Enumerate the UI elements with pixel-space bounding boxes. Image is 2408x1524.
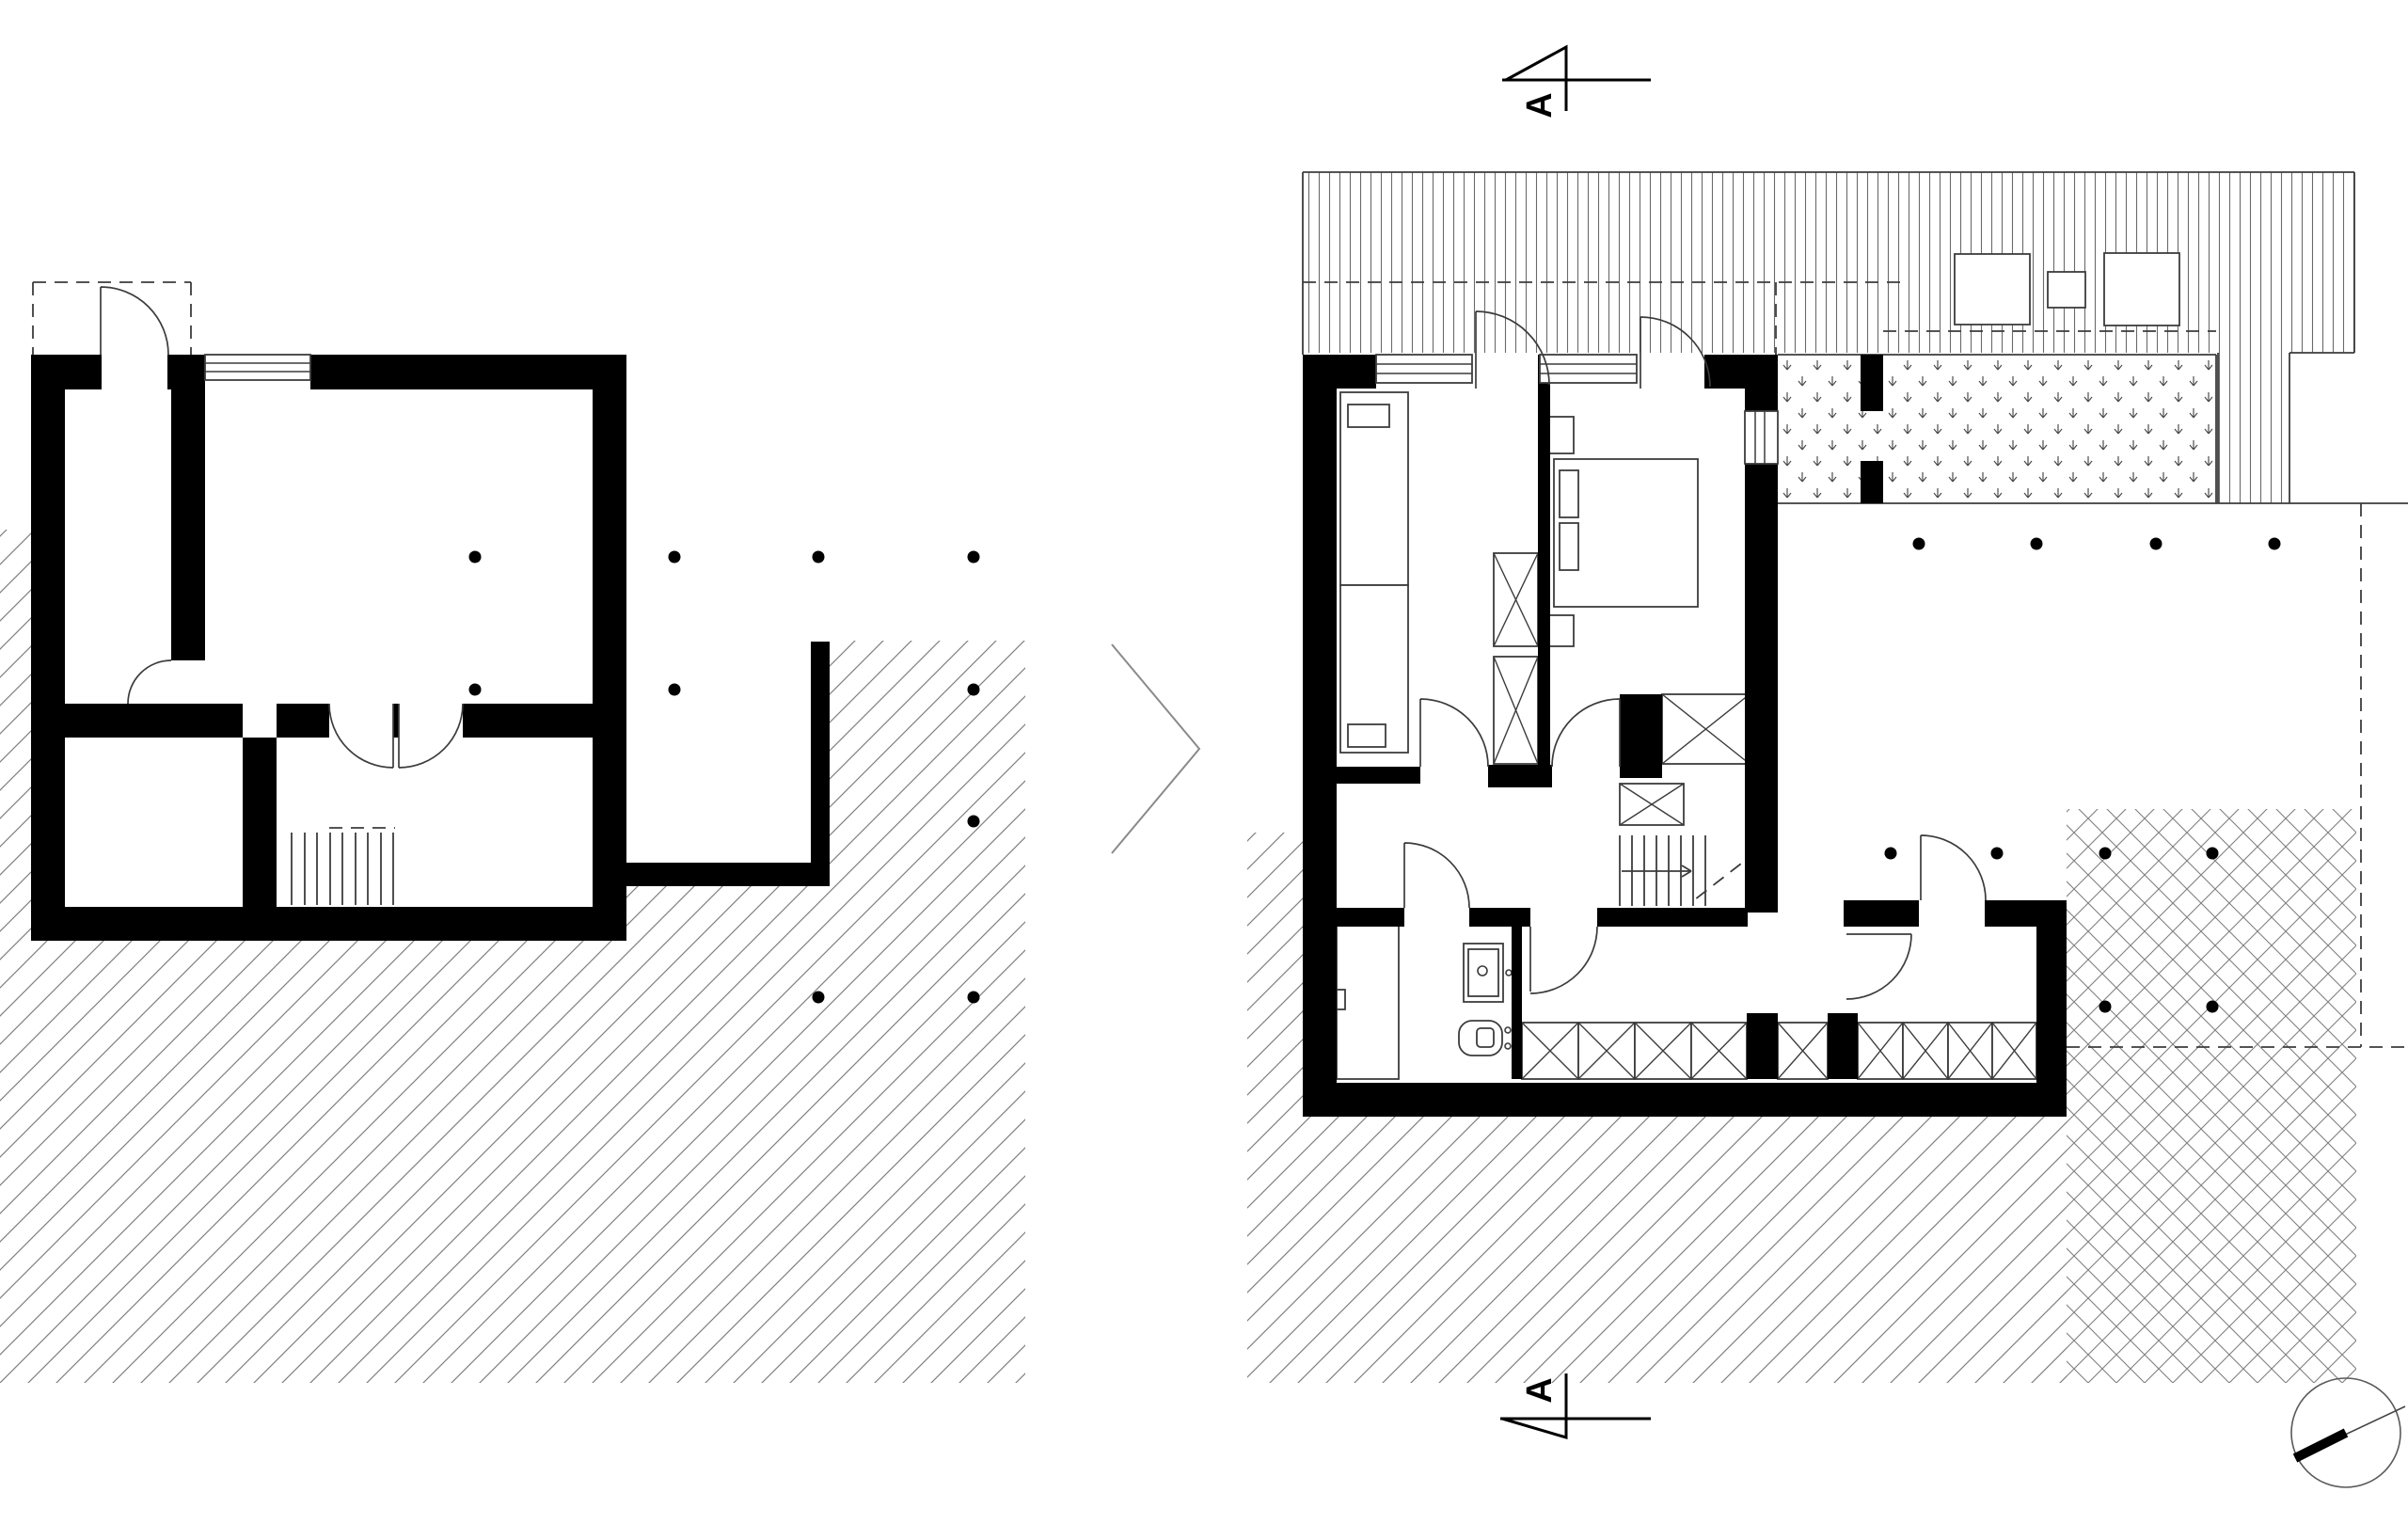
plant-symbol-icon xyxy=(1934,456,1941,466)
plant-symbol-icon xyxy=(2190,376,2197,386)
plant-symbol-icon xyxy=(2084,456,2092,466)
survey-dot xyxy=(2099,1001,2112,1013)
plant-symbol-icon xyxy=(1783,488,1791,498)
plant-symbol-icon xyxy=(2084,488,2092,498)
plant-symbol-icon xyxy=(1798,472,1806,482)
plant-symbol-icon xyxy=(1994,424,2002,434)
plant-symbol-icon xyxy=(1844,488,1851,498)
survey-dot xyxy=(813,551,825,564)
survey-dot xyxy=(2099,848,2112,860)
wall-segment xyxy=(171,389,205,660)
wall-segment xyxy=(167,355,205,389)
door-hall-1 xyxy=(329,704,393,768)
section-direction-triangle-icon xyxy=(1502,1419,1566,1437)
plant-symbol-icon xyxy=(1934,424,1941,434)
ground-hatch-region xyxy=(0,941,1025,1383)
plant-symbol-icon xyxy=(1814,456,1821,466)
plant-symbol-icon xyxy=(2115,488,2122,498)
furniture-outline xyxy=(1560,470,1578,517)
wall-segment xyxy=(65,704,243,738)
furniture-outline xyxy=(1348,724,1386,747)
wall-segment xyxy=(593,355,626,907)
plant-symbol-icon xyxy=(1904,456,1911,466)
plant-symbol-icon xyxy=(1964,488,1972,498)
plant-symbol-icon xyxy=(2160,376,2167,386)
detail-line xyxy=(1682,871,1691,877)
plant-symbol-icon xyxy=(1889,472,1896,482)
section-label: A xyxy=(1520,92,1560,118)
plant-symbol-icon xyxy=(1844,360,1851,370)
plant-symbol-icon xyxy=(2145,424,2152,434)
plant-symbol-icon xyxy=(2160,408,2167,418)
plant-symbol-icon xyxy=(2115,360,2122,370)
plant-symbol-icon xyxy=(2054,488,2062,498)
door-bath xyxy=(1404,843,1469,908)
ground-hatch-region xyxy=(626,886,830,941)
plant-symbol-icon xyxy=(2054,456,2062,466)
plant-symbol-icon xyxy=(2145,456,2152,466)
plant-symbol-icon xyxy=(1934,360,1941,370)
survey-dot xyxy=(968,816,980,828)
plant-symbol-icon xyxy=(1964,360,1972,370)
north-needle-thick xyxy=(2295,1433,2346,1458)
plant-symbol-icon xyxy=(1904,424,1911,434)
plant-symbol-icon xyxy=(1844,392,1851,402)
section-marker-top: A xyxy=(1502,46,1651,119)
plant-symbol-icon xyxy=(1934,488,1941,498)
terrace-plant-symbols xyxy=(1783,360,2212,498)
wall-segment xyxy=(277,704,329,738)
fixture-icon xyxy=(1506,970,1512,976)
window xyxy=(205,355,310,380)
plant-symbol-icon xyxy=(1783,360,1791,370)
plant-symbol-icon xyxy=(1949,408,1956,418)
ground-hatch-region xyxy=(1247,1117,2067,1383)
door-room-left xyxy=(128,660,171,704)
furniture-outline xyxy=(1547,615,1574,646)
plant-symbol-icon xyxy=(1783,424,1791,434)
wall-segment xyxy=(1844,900,1919,927)
plant-symbol-icon xyxy=(2175,488,2182,498)
wall-segment xyxy=(1469,908,1530,927)
plant-symbol-icon xyxy=(1889,408,1896,418)
wall-segment xyxy=(393,704,399,738)
survey-dot xyxy=(2207,848,2219,860)
survey-dot xyxy=(1991,848,2004,860)
door-entry-top xyxy=(1921,835,1986,900)
plant-symbol-icon xyxy=(1859,440,1866,450)
wall-segment xyxy=(1337,908,1404,927)
floor-plan-canvas: AA xyxy=(0,0,2408,1524)
plant-symbol-icon xyxy=(1979,472,1987,482)
furniture-outline xyxy=(1560,523,1578,570)
plant-symbol-icon xyxy=(2099,376,2107,386)
survey-dot xyxy=(2150,538,2162,550)
wall-segment xyxy=(1538,355,1550,767)
furniture-outline xyxy=(2048,272,2085,308)
section-label: A xyxy=(1520,1377,1560,1403)
door-hall-2 xyxy=(399,704,463,768)
plant-symbol-icon xyxy=(2130,472,2137,482)
roof-deck-hatch xyxy=(1303,172,2354,503)
plant-symbol-icon xyxy=(1829,376,1836,386)
wall-segment xyxy=(310,355,626,389)
plant-symbol-icon xyxy=(2190,408,2197,418)
plant-symbol-icon xyxy=(2130,376,2137,386)
survey-dot xyxy=(469,551,482,564)
survey-dot xyxy=(968,551,980,564)
plant-symbol-icon xyxy=(1844,456,1851,466)
survey-dot xyxy=(968,992,980,1004)
door-bedroom-1 xyxy=(1420,699,1488,767)
plant-symbol-icon xyxy=(2145,488,2152,498)
furniture-outline xyxy=(1547,417,1574,453)
transition-chevron-icon xyxy=(1112,644,1199,853)
plant-symbol-icon xyxy=(1783,392,1791,402)
plant-symbol-icon xyxy=(1994,392,2002,402)
wall-segment xyxy=(811,642,830,886)
plant-symbol-icon xyxy=(2069,376,2077,386)
survey-dot xyxy=(1913,538,1925,550)
plant-symbol-icon xyxy=(2099,408,2107,418)
plant-symbol-icon xyxy=(1949,472,1956,482)
wall-segment xyxy=(1303,1083,2067,1117)
plant-symbol-icon xyxy=(2175,424,2182,434)
plant-symbol-icon xyxy=(2024,488,2032,498)
survey-dot xyxy=(669,551,681,564)
survey-dot xyxy=(1885,848,1897,860)
roof-deck-region xyxy=(1303,172,2354,353)
plant-symbol-icon xyxy=(2009,408,2017,418)
roof-deck-region xyxy=(2218,353,2289,503)
wall-segment xyxy=(1828,1013,1858,1079)
plant-symbol-icon xyxy=(2084,424,2092,434)
plant-symbol-icon xyxy=(1934,392,1941,402)
plant-symbol-icon xyxy=(2190,472,2197,482)
architectural-drawing-page: AA xyxy=(0,0,2408,1524)
wall-segment xyxy=(1861,355,1883,411)
plant-symbol-icon xyxy=(1904,360,1911,370)
plant-symbol-icon xyxy=(2160,472,2167,482)
wall-segment xyxy=(243,738,277,907)
plant-symbol-icon xyxy=(2024,360,2032,370)
furniture-outline xyxy=(1337,925,1399,1079)
plant-symbol-icon xyxy=(2205,424,2212,434)
wall-segment xyxy=(463,704,626,738)
plant-symbol-icon xyxy=(2115,392,2122,402)
wall-segment xyxy=(1303,355,1337,1117)
window xyxy=(1745,411,1778,464)
furniture-outline xyxy=(1468,949,1498,996)
plant-symbol-icon xyxy=(1798,408,1806,418)
plant-symbol-icon xyxy=(1829,472,1836,482)
plant-symbol-icon xyxy=(1979,440,1987,450)
plant-symbol-icon xyxy=(1904,392,1911,402)
plant-symbol-icon xyxy=(2160,440,2167,450)
plant-symbol-icon xyxy=(2099,472,2107,482)
plant-symbol-icon xyxy=(1919,440,1926,450)
survey-dot xyxy=(469,684,482,696)
plant-symbol-icon xyxy=(1829,408,1836,418)
plant-symbol-icon xyxy=(1919,376,1926,386)
plant-symbol-icon xyxy=(1798,440,1806,450)
plant-symbol-icon xyxy=(2205,360,2212,370)
plant-symbol-icon xyxy=(2084,392,2092,402)
plant-symbol-icon xyxy=(2084,360,2092,370)
ground-hatch-region xyxy=(1247,833,1303,1117)
plant-symbol-icon xyxy=(1889,376,1896,386)
plant-symbol-icon xyxy=(1949,440,1956,450)
survey-dot xyxy=(669,684,681,696)
wall-segment xyxy=(1620,694,1662,778)
plant-symbol-icon xyxy=(1814,424,1821,434)
paved-terrace-hatch xyxy=(2067,809,2356,1383)
furniture-outline xyxy=(1955,254,2030,325)
plant-symbol-icon xyxy=(2145,360,2152,370)
door-porch xyxy=(101,287,168,355)
survey-dot xyxy=(813,992,825,1004)
paved-region xyxy=(2067,809,2356,1383)
plant-symbol-icon xyxy=(1979,376,1987,386)
plant-symbol-icon xyxy=(2039,376,2047,386)
plant-symbol-icon xyxy=(1994,360,2002,370)
plant-symbol-icon xyxy=(1979,408,1987,418)
window xyxy=(1376,355,1472,383)
wall-segment xyxy=(31,355,65,941)
plant-symbol-icon xyxy=(2145,392,2152,402)
plant-symbol-icon xyxy=(2175,456,2182,466)
plant-symbol-icon xyxy=(2175,392,2182,402)
plant-symbol-icon xyxy=(2205,392,2212,402)
plant-symbol-icon xyxy=(1889,440,1896,450)
fixture-icon xyxy=(1505,1043,1511,1049)
plant-symbol-icon xyxy=(2024,424,2032,434)
plant-symbol-icon xyxy=(1814,488,1821,498)
plant-symbol-icon xyxy=(1829,440,1836,450)
survey-dot xyxy=(968,684,980,696)
plant-symbol-icon xyxy=(1874,424,1881,434)
plant-symbol-icon xyxy=(1783,456,1791,466)
plant-symbol-icon xyxy=(2115,424,2122,434)
wall-segment xyxy=(1488,765,1552,787)
wall-segment xyxy=(1861,461,1883,503)
plant-symbol-icon xyxy=(1844,424,1851,434)
plant-symbol-icon xyxy=(2024,392,2032,402)
plant-symbol-icon xyxy=(2190,440,2197,450)
plant-symbol-icon xyxy=(2069,472,2077,482)
survey-dot xyxy=(2207,1001,2219,1013)
plant-symbol-icon xyxy=(2130,408,2137,418)
wall-segment xyxy=(1512,927,1522,1079)
wall-segment xyxy=(1745,355,1778,411)
door-entry-side xyxy=(1846,934,1911,999)
plant-symbol-icon xyxy=(1814,360,1821,370)
plant-symbol-icon xyxy=(2099,440,2107,450)
plant-symbol-icon xyxy=(2205,456,2212,466)
survey-dot xyxy=(2031,538,2043,550)
section-direction-triangle-icon xyxy=(1506,47,1566,80)
plant-symbol-icon xyxy=(2130,440,2137,450)
plant-symbol-icon xyxy=(2115,456,2122,466)
wall-segment xyxy=(31,907,626,941)
plant-symbol-icon xyxy=(1919,472,1926,482)
plant-symbol-icon xyxy=(1949,376,1956,386)
plant-symbol-icon xyxy=(2039,440,2047,450)
plant-symbol-icon xyxy=(2069,440,2077,450)
plant-symbol-icon xyxy=(2054,424,2062,434)
plant-symbol-icon xyxy=(2039,408,2047,418)
furniture-outline xyxy=(1348,405,1389,427)
ground-hatch-region xyxy=(830,641,1025,941)
plant-symbol-icon xyxy=(1814,392,1821,402)
plant-symbol-icon xyxy=(1919,408,1926,418)
furniture-outline xyxy=(1477,1028,1494,1047)
wall-segment xyxy=(626,863,830,886)
plant-symbol-icon xyxy=(2024,456,2032,466)
wall-segment xyxy=(1597,908,1748,927)
furniture-outline xyxy=(2104,253,2179,325)
door-bedroom-2 xyxy=(1552,699,1620,767)
ground-hatch-region xyxy=(0,530,31,941)
plant-symbol-icon xyxy=(1964,456,1972,466)
plant-symbol-icon xyxy=(1904,488,1911,498)
plant-symbol-icon xyxy=(1994,456,2002,466)
wall-segment xyxy=(1745,464,1778,913)
plant-symbol-icon xyxy=(1798,376,1806,386)
plant-symbol-icon xyxy=(1964,392,1972,402)
plant-symbol-icon xyxy=(2175,360,2182,370)
window xyxy=(1540,355,1637,383)
furniture-outline xyxy=(1337,990,1345,1009)
door-corridor xyxy=(1530,927,1597,993)
survey-dot xyxy=(2269,538,2281,550)
plant-symbol-icon xyxy=(2054,392,2062,402)
section-marker-bottom: A xyxy=(1500,1373,1651,1437)
plant-symbol-icon xyxy=(2054,360,2062,370)
north-arrow xyxy=(2291,1378,2405,1487)
plant-symbol-icon xyxy=(2205,488,2212,498)
wall-segment xyxy=(1747,1013,1778,1079)
fixture-icon xyxy=(1505,1027,1511,1033)
wall-segment xyxy=(1337,767,1420,784)
plant-symbol-icon xyxy=(1994,488,2002,498)
plant-symbol-icon xyxy=(2009,376,2017,386)
plant-symbol-icon xyxy=(2009,472,2017,482)
plant-symbol-icon xyxy=(2009,440,2017,450)
plant-symbol-icon xyxy=(1964,424,1972,434)
plant-symbol-icon xyxy=(2039,472,2047,482)
plant-symbol-icon xyxy=(2069,408,2077,418)
